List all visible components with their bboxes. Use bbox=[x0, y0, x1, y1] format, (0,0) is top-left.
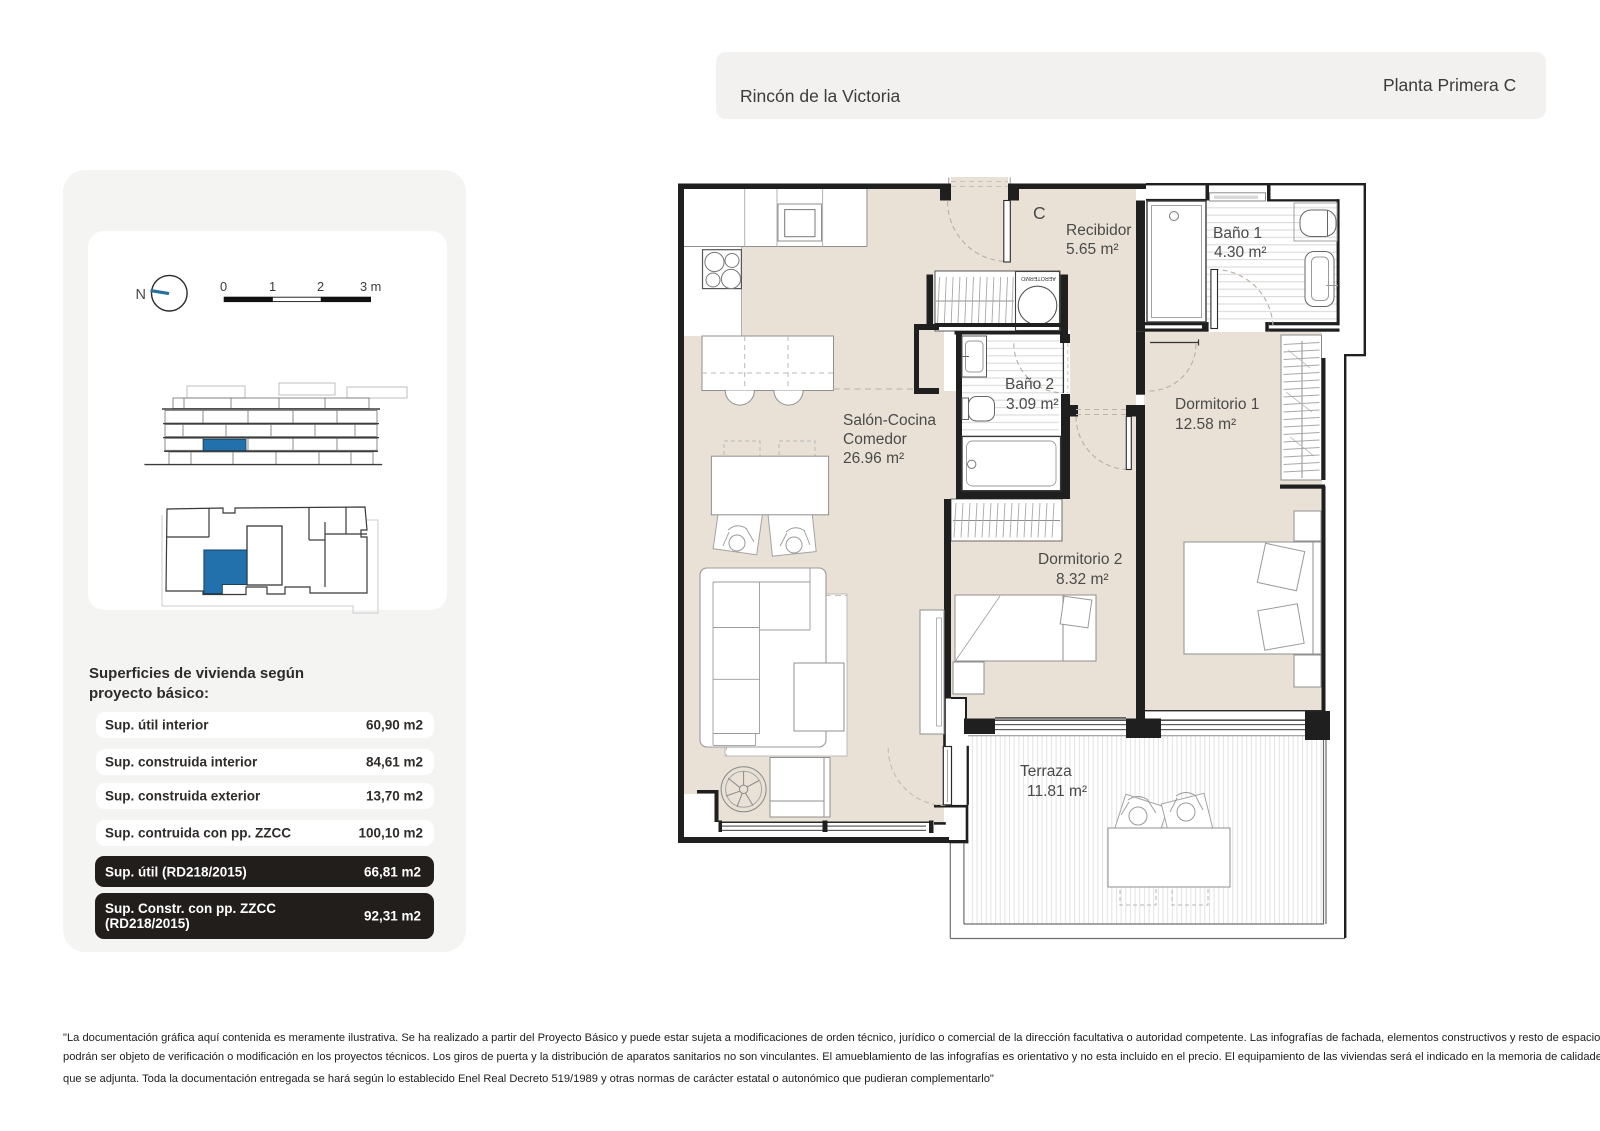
svg-text:Dormitorio 2: Dormitorio 2 bbox=[1038, 551, 1122, 568]
svg-text:Baño 1: Baño 1 bbox=[1213, 225, 1262, 242]
svg-text:11.81 m²: 11.81 m² bbox=[1027, 783, 1087, 800]
svg-text:3.09 m²: 3.09 m² bbox=[1006, 396, 1059, 413]
svg-text:Salón-Cocina: Salón-Cocina bbox=[843, 412, 936, 429]
svg-text:C: C bbox=[1033, 203, 1046, 223]
svg-text:26.96 m²: 26.96 m² bbox=[843, 450, 904, 467]
svg-text:Dormitorio 1: Dormitorio 1 bbox=[1175, 396, 1259, 413]
svg-text:8.32 m²: 8.32 m² bbox=[1056, 571, 1109, 588]
svg-text:Comedor: Comedor bbox=[843, 431, 907, 448]
svg-text:12.58 m²: 12.58 m² bbox=[1175, 416, 1236, 433]
svg-text:Baño 2: Baño 2 bbox=[1005, 376, 1054, 393]
svg-text:Terraza: Terraza bbox=[1020, 763, 1072, 780]
svg-text:5.65 m²: 5.65 m² bbox=[1066, 241, 1119, 258]
svg-text:AEROTERMO: AEROTERMO bbox=[1021, 275, 1056, 281]
svg-text:4.30 m²: 4.30 m² bbox=[1214, 244, 1267, 261]
svg-text:Recibidor: Recibidor bbox=[1066, 222, 1131, 239]
